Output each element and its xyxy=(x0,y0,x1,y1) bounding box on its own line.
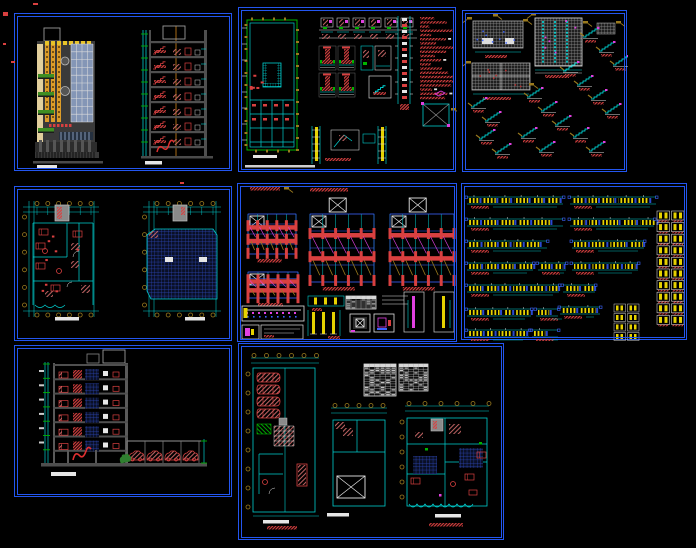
stray-annotation-mark xyxy=(3,12,8,16)
slab-plan-a xyxy=(463,14,532,58)
floor-plans-and-schedule-tables-sheet-drawing xyxy=(239,344,505,541)
framing-plans-sheet-drawing xyxy=(238,184,458,343)
roof-plan-right xyxy=(143,201,222,321)
foundation-plan-and-details-sheet[interactable] xyxy=(238,7,456,172)
detail-boxes xyxy=(242,292,454,339)
building-section-with-parking-sheet[interactable] xyxy=(14,345,232,497)
slab-plan-c xyxy=(527,13,625,78)
framing-plan-mid xyxy=(309,198,376,291)
stray-annotation-mark xyxy=(3,43,6,45)
elevation-and-section-sheet[interactable] xyxy=(14,13,232,171)
general-notes xyxy=(420,17,454,99)
foundation-plan-and-details-sheet-drawing xyxy=(239,8,457,173)
schedule-table-1 xyxy=(364,364,396,396)
column-detail xyxy=(395,16,413,110)
stray-annotation-mark xyxy=(11,61,15,63)
floor-plan-and-roof-plan-sheet[interactable] xyxy=(14,186,232,341)
tank-detail xyxy=(421,102,457,127)
building-elevation xyxy=(33,28,103,169)
plan-titles xyxy=(250,187,348,193)
floor-plan-and-roof-plan-sheet-drawing xyxy=(15,187,233,342)
column-section-grid xyxy=(614,211,684,341)
elevation-and-section-sheet-drawing xyxy=(15,14,233,172)
stray-annotation-mark xyxy=(180,182,184,184)
floor-plan-left xyxy=(23,201,100,321)
building-section-with-parking-sheet-drawing xyxy=(15,346,233,498)
beam-elevation-schedule-sheet-drawing xyxy=(462,184,688,341)
beam-elevation-schedule-sheet[interactable] xyxy=(461,183,687,340)
upper-floor-plan xyxy=(400,402,491,527)
floor-plans-and-schedule-tables-sheet[interactable] xyxy=(238,343,504,540)
misc-details xyxy=(245,130,375,168)
framing-plan-small xyxy=(247,214,300,307)
cad-model-space xyxy=(0,0,696,548)
slab-and-stair-details-sheet-drawing xyxy=(463,11,628,173)
ground-floor-plan xyxy=(246,354,319,530)
framing-plans-sheet[interactable] xyxy=(237,183,457,342)
schedule-table-2 xyxy=(399,364,428,391)
foundation-plan xyxy=(242,18,299,159)
mid-floor-plan xyxy=(327,404,387,517)
slab-plan-b xyxy=(463,61,538,100)
framing-plan-right xyxy=(389,198,456,291)
beam-elevations xyxy=(465,195,659,341)
wall-section-strip xyxy=(319,18,417,39)
parking-canopy xyxy=(120,439,207,463)
building-section xyxy=(141,26,213,165)
footing-details xyxy=(319,46,391,98)
stray-annotation-mark xyxy=(33,3,38,5)
slab-and-stair-details-sheet[interactable] xyxy=(462,10,627,172)
